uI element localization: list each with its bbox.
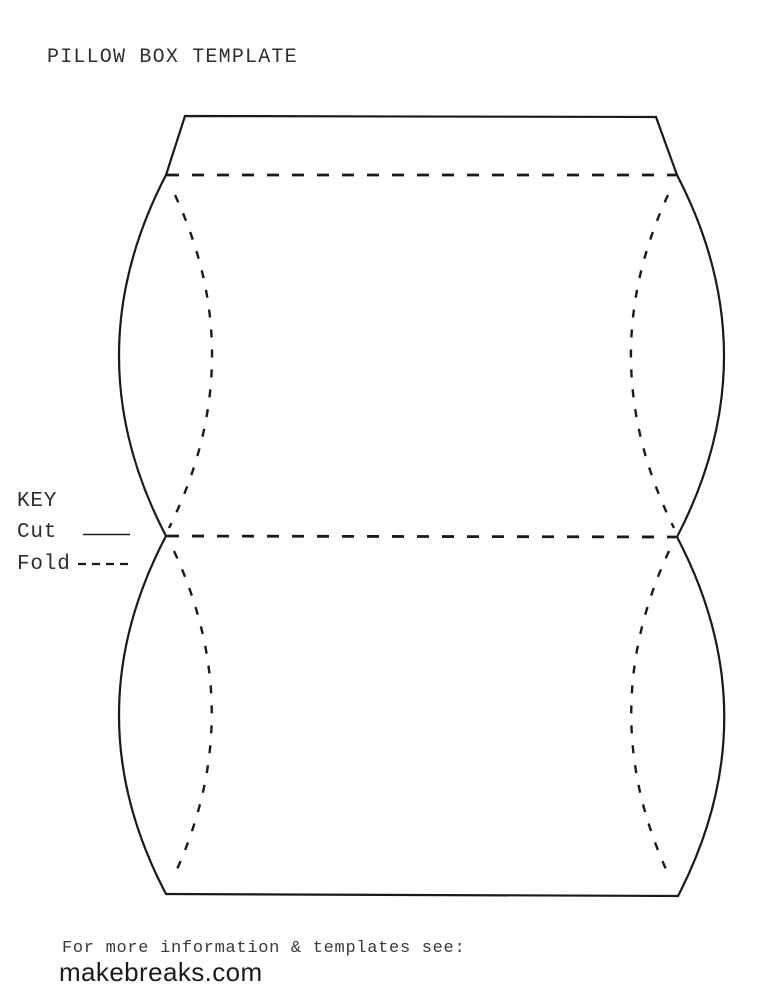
middle-fold-line <box>167 536 676 537</box>
right-bottom-fold-curve <box>631 551 670 878</box>
footer-website: makebreaks.com <box>59 957 263 988</box>
glue-flap-cut-line <box>166 116 677 175</box>
right-top-cut-curve <box>677 175 724 537</box>
left-top-fold-curve <box>169 195 212 528</box>
diagram-lines <box>78 116 724 896</box>
template-sheet: PILLOW BOX TEMPLATE KEY Cut Fold <box>0 0 773 1000</box>
bottom-cut-line <box>166 894 678 896</box>
left-top-cut-curve <box>119 175 166 536</box>
pillow-box-diagram <box>0 0 773 1000</box>
footer-note: For more information & templates see: <box>62 939 465 958</box>
left-bottom-fold-curve <box>173 551 212 878</box>
right-bottom-cut-curve <box>677 537 724 896</box>
left-bottom-cut-curve <box>119 536 166 894</box>
right-top-fold-curve <box>631 195 674 528</box>
